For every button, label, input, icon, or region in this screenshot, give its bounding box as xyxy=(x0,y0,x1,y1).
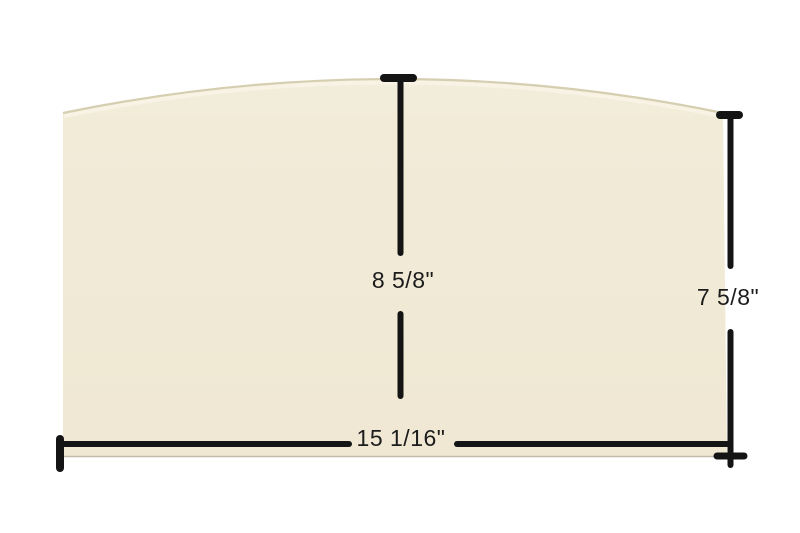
diagram-canvas: 8 5/8" 7 5/8" 15 1/16" xyxy=(0,0,800,533)
right-height-label: 7 5/8" xyxy=(697,284,759,310)
center-height-label: 8 5/8" xyxy=(372,267,434,293)
bottom-width-label: 15 1/16" xyxy=(357,425,446,451)
dimension-diagram-svg: 8 5/8" 7 5/8" 15 1/16" xyxy=(0,0,800,533)
